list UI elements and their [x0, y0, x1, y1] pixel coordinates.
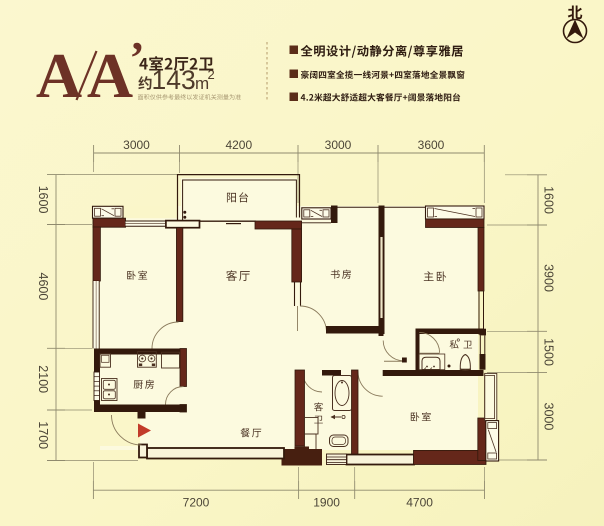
- svg-text:7200: 7200: [183, 496, 210, 510]
- svg-text:1900: 1900: [313, 496, 340, 510]
- svg-text:1600: 1600: [36, 186, 50, 214]
- svg-text:3000: 3000: [325, 138, 352, 152]
- svg-text:4700: 4700: [406, 496, 433, 510]
- svg-text:’: ’: [129, 32, 144, 83]
- svg-text:2100: 2100: [36, 365, 50, 393]
- svg-text:4600: 4600: [36, 272, 50, 300]
- svg-text:4200: 4200: [225, 138, 252, 152]
- svg-text:1700: 1700: [36, 421, 50, 449]
- svg-text:A: A: [36, 40, 82, 111]
- svg-text:143: 143: [152, 65, 196, 95]
- svg-text:1500: 1500: [542, 338, 556, 366]
- svg-text:3000: 3000: [542, 402, 556, 430]
- svg-text:3000: 3000: [123, 138, 150, 152]
- svg-text:3900: 3900: [542, 264, 556, 292]
- svg-text:3600: 3600: [418, 138, 445, 152]
- svg-text:1600: 1600: [542, 186, 556, 214]
- svg-text:A: A: [87, 40, 133, 111]
- svg-text:2: 2: [208, 67, 215, 82]
